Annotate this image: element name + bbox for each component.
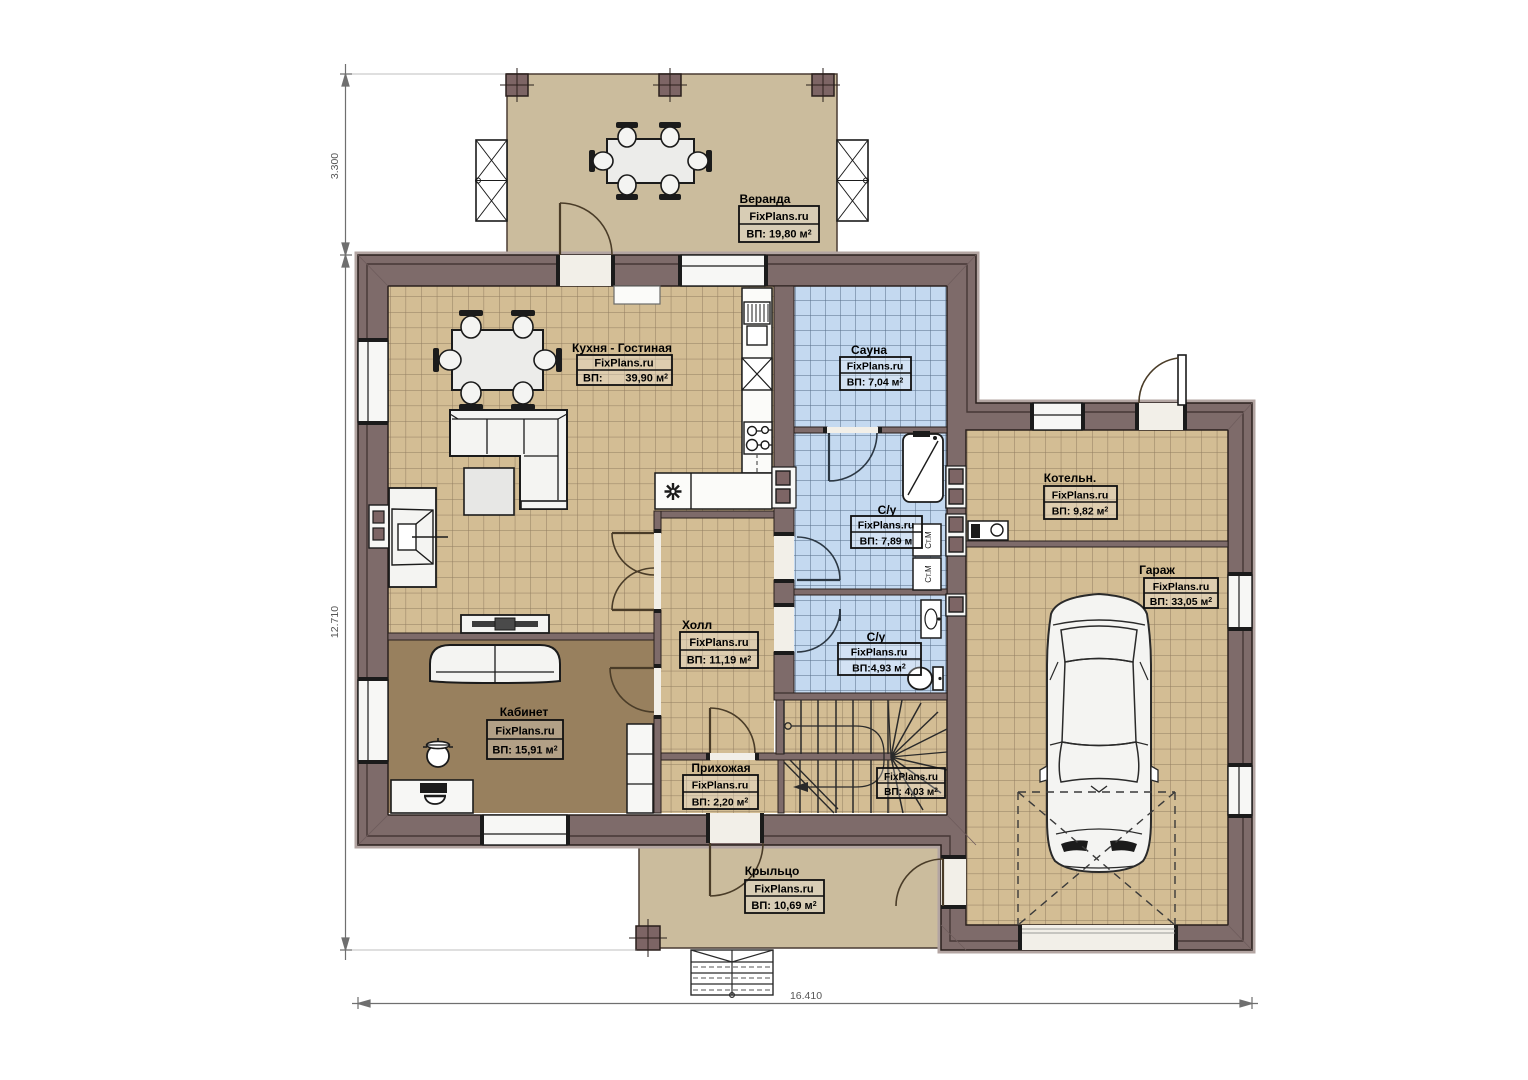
svg-text:ВП: 4,03 м2: ВП: 4,03 м2 bbox=[884, 787, 938, 798]
svg-text:Веранда: Веранда bbox=[740, 192, 791, 206]
svg-text:ВП: 19,80 м2: ВП: 19,80 м2 bbox=[746, 229, 811, 241]
svg-text:Кабинет: Кабинет bbox=[500, 705, 549, 719]
svg-text:FixPlans.ru: FixPlans.ru bbox=[754, 884, 813, 896]
svg-text:12.710: 12.710 bbox=[329, 606, 341, 638]
svg-text:FixPlans.ru: FixPlans.ru bbox=[884, 772, 938, 783]
svg-text:FixPlans.ru: FixPlans.ru bbox=[749, 211, 808, 223]
svg-text:ВП: 11,19 м2: ВП: 11,19 м2 bbox=[687, 655, 752, 667]
svg-text:Крыльцо: Крыльцо bbox=[745, 864, 800, 878]
svg-text:FixPlans.ru: FixPlans.ru bbox=[594, 358, 653, 370]
svg-text:ВП: 33,05 м2: ВП: 33,05 м2 bbox=[1150, 596, 1213, 608]
svg-text:С/у: С/у bbox=[867, 630, 886, 644]
svg-text:Котельн.: Котельн. bbox=[1044, 471, 1097, 485]
svg-text:Сауна: Сауна bbox=[851, 343, 887, 357]
svg-text:FixPlans.ru: FixPlans.ru bbox=[689, 637, 748, 649]
svg-text:ВП: 10,69 м2: ВП: 10,69 м2 bbox=[751, 900, 816, 912]
svg-text:С/у: С/у bbox=[878, 503, 897, 517]
svg-text:ВП: 7,04 м2: ВП: 7,04 м2 bbox=[847, 377, 904, 389]
svg-text:ВП:4,93 м2: ВП:4,93 м2 bbox=[852, 663, 906, 675]
svg-text:FixPlans.ru: FixPlans.ru bbox=[692, 780, 749, 792]
svg-text:FixPlans.ru: FixPlans.ru bbox=[858, 520, 915, 532]
svg-text:FixPlans.ru: FixPlans.ru bbox=[495, 726, 554, 738]
svg-text:Гараж: Гараж bbox=[1139, 563, 1175, 577]
svg-text:39,90 м2: 39,90 м2 bbox=[625, 373, 668, 385]
svg-text:ВП: 2,20 м2: ВП: 2,20 м2 bbox=[692, 797, 749, 809]
svg-text:Кухня - Гостиная: Кухня - Гостиная bbox=[572, 341, 672, 355]
svg-text:FixPlans.ru: FixPlans.ru bbox=[1153, 581, 1210, 593]
svg-text:16.410: 16.410 bbox=[790, 990, 822, 1002]
svg-text:ВП:: ВП: bbox=[583, 373, 603, 385]
svg-text:FixPlans.ru: FixPlans.ru bbox=[851, 647, 908, 659]
svg-text:Ст.М: Ст.М bbox=[924, 531, 933, 549]
svg-text:ВП: 15,91 м2: ВП: 15,91 м2 bbox=[492, 745, 557, 757]
svg-text:Ст.М: Ст.М bbox=[924, 565, 933, 583]
svg-text:Холл: Холл bbox=[682, 618, 712, 632]
svg-text:ВП: 9,82 м2: ВП: 9,82 м2 bbox=[1052, 506, 1109, 518]
svg-text:FixPlans.ru: FixPlans.ru bbox=[1052, 490, 1109, 502]
svg-text:ВП: 7,89 м: ВП: 7,89 м bbox=[860, 536, 913, 548]
svg-text:FixPlans.ru: FixPlans.ru bbox=[847, 361, 904, 373]
svg-text:3.300: 3.300 bbox=[329, 153, 341, 179]
svg-text:Прихожая: Прихожая bbox=[691, 761, 750, 775]
